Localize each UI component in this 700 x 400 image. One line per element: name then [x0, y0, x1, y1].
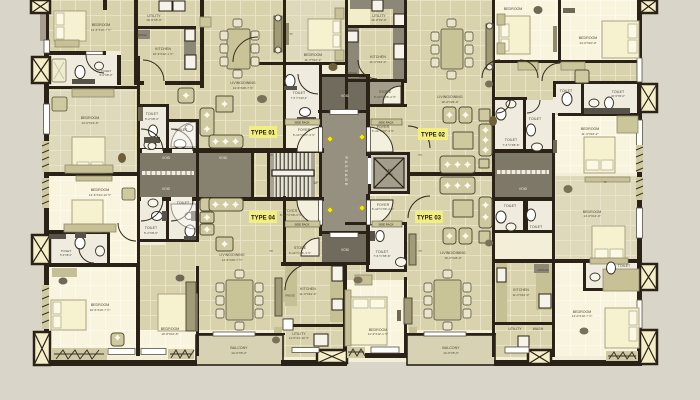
- svg-text:TOILET: TOILET: [560, 89, 573, 93]
- svg-text:11'-0"X12'-0": 11'-0"X12'-0": [512, 293, 529, 297]
- svg-text:KITCHEN: KITCHEN: [370, 55, 386, 59]
- svg-text:TOILET: TOILET: [530, 225, 543, 229]
- svg-text:11'-3"X12'-1 ½": 11'-3"X12'-1 ½": [368, 332, 388, 336]
- svg-text:TYPE 01: TYPE 01: [251, 131, 276, 137]
- svg-text:10'-6"X10'-7 ½": 10'-6"X10'-7 ½": [90, 308, 111, 312]
- svg-text:6'-10 ½"X7'-4 ½": 6'-10 ½"X7'-4 ½": [372, 129, 394, 133]
- svg-text:KITCHEN: KITCHEN: [155, 47, 171, 51]
- svg-text:SIDE RACK: SIDE RACK: [294, 223, 309, 227]
- svg-text:14'-6"X5'-0": 14'-6"X5'-0": [443, 351, 459, 355]
- svg-text:7'-6 ½"X8'-6": 7'-6 ½"X8'-6": [502, 143, 519, 147]
- svg-text:14'-6"X26'-7 ½": 14'-6"X26'-7 ½": [222, 258, 243, 262]
- svg-text:10'-9"X5'-6": 10'-9"X5'-6": [146, 18, 162, 22]
- svg-text:STORE: STORE: [379, 90, 392, 94]
- svg-text:TOILET: TOILET: [61, 249, 72, 253]
- svg-text:14'-6"X13'-10 ½": 14'-6"X13'-10 ½": [89, 193, 111, 197]
- svg-text:BEDROOM: BEDROOM: [92, 23, 111, 27]
- svg-text:11'-0"X12'-0": 11'-0"X12'-0": [369, 60, 386, 64]
- svg-text:UP: UP: [314, 181, 319, 185]
- svg-text:16'-0"X26'-0": 16'-0"X26'-0": [441, 100, 458, 104]
- svg-text:TOILET: TOILET: [177, 201, 190, 205]
- svg-text:KITCHEN: KITCHEN: [513, 288, 529, 292]
- svg-text:11'-0"X2'-6": 11'-0"X2'-6": [371, 18, 386, 22]
- svg-text:10'-8"X10'-6": 10'-8"X10'-6": [161, 332, 178, 336]
- svg-text:FRIDGE: FRIDGE: [285, 294, 295, 298]
- svg-text:VOID: VOID: [341, 248, 350, 252]
- svg-text:TOILET: TOILET: [175, 128, 188, 132]
- svg-text:FRIDGE: FRIDGE: [537, 268, 548, 272]
- svg-text:UTILITY: UTILITY: [508, 327, 522, 331]
- svg-text:VOID: VOID: [162, 156, 171, 160]
- svg-text:TOILET: TOILET: [505, 138, 518, 142]
- svg-text:SIDE RACK: SIDE RACK: [294, 121, 309, 125]
- svg-text:TV: TV: [418, 249, 422, 253]
- svg-text:LIVING/DINING: LIVING/DINING: [230, 81, 256, 85]
- svg-text:LIFT: LIFT: [386, 168, 392, 172]
- svg-text:14'-6"X26'-7 ½": 14'-6"X26'-7 ½": [233, 86, 254, 90]
- svg-text:BEDROOM: BEDROOM: [91, 303, 110, 307]
- svg-text:TV: TV: [269, 249, 273, 253]
- svg-text:TV: TV: [603, 180, 607, 184]
- svg-text:TYPE 02: TYPE 02: [421, 133, 446, 139]
- svg-text:TYPE 04: TYPE 04: [251, 216, 276, 222]
- svg-text:7'-6 ½"X8'-6": 7'-6 ½"X8'-6": [373, 254, 390, 258]
- svg-text:16'-0"X26'-0": 16'-0"X26'-0": [444, 256, 461, 260]
- svg-text:BALCONY: BALCONY: [230, 346, 248, 350]
- svg-text:TOILET: TOILET: [618, 264, 631, 268]
- svg-text:FRIDGE: FRIDGE: [347, 71, 357, 75]
- svg-text:BALCONY: BALCONY: [442, 346, 460, 350]
- svg-text:6'-10 ½"X6'-4 ½": 6'-10 ½"X6'-4 ½": [374, 95, 396, 99]
- svg-text:BEDROOM: BEDROOM: [581, 127, 600, 131]
- svg-text:14'-0"X10'-7 ½": 14'-0"X10'-7 ½": [572, 314, 593, 318]
- svg-text:VOID: VOID: [519, 187, 528, 191]
- svg-text:5'-2"X8'-6": 5'-2"X8'-6": [145, 117, 159, 121]
- svg-text:6'-10 ½"X7'-4 ½": 6'-10 ½"X7'-4 ½": [293, 133, 315, 137]
- svg-text:11'-0"X12'-0": 11'-0"X12'-0": [299, 292, 316, 296]
- svg-text:BEDROOM: BEDROOM: [304, 53, 323, 57]
- svg-text:TOILET: TOILET: [504, 204, 517, 208]
- svg-text:14'-6"X5'-0": 14'-6"X5'-0": [231, 351, 247, 355]
- svg-text:TOILET: TOILET: [145, 226, 158, 230]
- svg-text:STORE: STORE: [294, 246, 307, 250]
- svg-text:10'-9"X12'-1 ½": 10'-9"X12'-1 ½": [153, 52, 174, 56]
- svg-text:14'-6"X13'-9": 14'-6"X13'-9": [81, 121, 98, 125]
- svg-text:(6 PAX): (6 PAX): [385, 173, 393, 176]
- svg-text:11'-0"X3'-10 ½": 11'-0"X3'-10 ½": [289, 336, 309, 340]
- svg-text:LIVING/DINING: LIVING/DINING: [437, 95, 463, 99]
- svg-text:WASH: WASH: [533, 327, 544, 331]
- svg-text:SIDE RACK: SIDE RACK: [378, 121, 393, 125]
- svg-text:5'-2"X8'-6": 5'-2"X8'-6": [144, 231, 158, 235]
- svg-text:5'-0"X8'-0": 5'-0"X8'-0": [60, 253, 72, 257]
- svg-text:11'-3"X10'-2": 11'-3"X10'-2": [304, 58, 321, 62]
- svg-text:14'-6"X10'-7 ½": 14'-6"X10'-7 ½": [91, 28, 112, 32]
- svg-text:6'-10 ½"X6'-4 ½": 6'-10 ½"X6'-4 ½": [372, 207, 394, 211]
- svg-text:PASSAGE: PASSAGE: [344, 157, 348, 188]
- svg-text:TOILET: TOILET: [529, 117, 542, 121]
- svg-text:LIVING/DINING: LIVING/DINING: [219, 253, 245, 257]
- svg-text:6'-10 ½"X6'-4 ½": 6'-10 ½"X6'-4 ½": [289, 251, 311, 255]
- svg-text:TOILET: TOILET: [612, 90, 625, 94]
- svg-text:TOILET: TOILET: [146, 112, 159, 116]
- svg-text:FRIDGE: FRIDGE: [137, 33, 147, 37]
- svg-text:6'-10 ½"X6'-4 ½": 6'-10 ½"X6'-4 ½": [280, 213, 302, 217]
- svg-text:TYPE 03: TYPE 03: [417, 216, 442, 222]
- svg-text:FOYER: FOYER: [298, 128, 311, 132]
- svg-text:11'-3"X10'-2": 11'-3"X10'-2": [581, 132, 598, 136]
- svg-text:VOID: VOID: [162, 187, 171, 191]
- svg-text:BEDROOM: BEDROOM: [161, 327, 180, 331]
- svg-text:BEDROOM: BEDROOM: [81, 116, 100, 120]
- svg-text:10'-5"X5'-6": 10'-5"X5'-6": [611, 94, 625, 98]
- svg-text:VOID: VOID: [341, 94, 350, 98]
- svg-text:14'-0"X14'-0": 14'-0"X14'-0": [583, 214, 600, 218]
- svg-text:TV: TV: [289, 32, 293, 36]
- svg-text:BEDROOM: BEDROOM: [579, 36, 598, 40]
- svg-text:TV: TV: [418, 153, 422, 157]
- svg-text:BEDROOM: BEDROOM: [91, 188, 110, 192]
- svg-text:TV: TV: [269, 153, 273, 157]
- svg-text:TOILET: TOILET: [293, 91, 306, 95]
- svg-text:5'-0"X8'-0": 5'-0"X8'-0": [99, 73, 112, 77]
- svg-text:VOID: VOID: [219, 156, 228, 160]
- svg-text:BEDROOM: BEDROOM: [504, 7, 523, 11]
- svg-text:SIDE RACK: SIDE RACK: [378, 223, 393, 227]
- svg-text:14'-0"X10'-0": 14'-0"X10'-0": [579, 41, 596, 45]
- svg-text:LIVING/DINING: LIVING/DINING: [440, 251, 466, 255]
- svg-text:KITCHEN: KITCHEN: [300, 287, 316, 291]
- svg-text:7'-6 ½"X10'-4": 7'-6 ½"X10'-4": [291, 96, 307, 100]
